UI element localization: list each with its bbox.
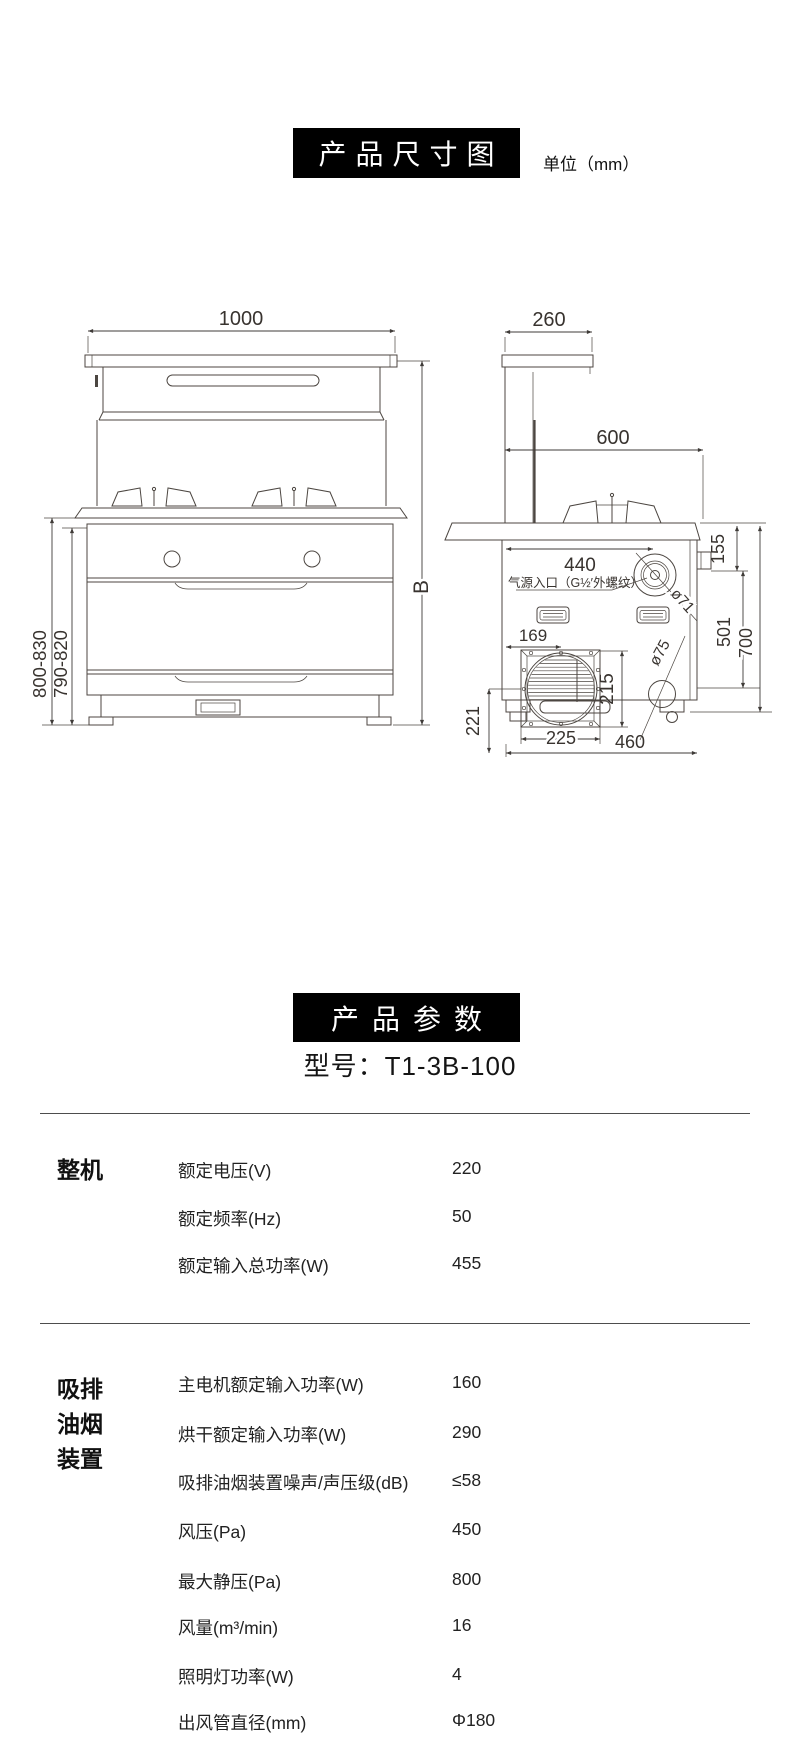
dim-790-820-label: 790-820 xyxy=(50,630,71,698)
spec-row: 照明灯功率(W) 4 xyxy=(0,1664,790,1690)
dim-440: 440 xyxy=(506,549,653,576)
dim-dia75-label: ø75 xyxy=(646,637,674,669)
spec-row: 主电机额定输入功率(W) 160 xyxy=(0,1372,790,1398)
dim-dia71-label: ø71 xyxy=(667,585,698,616)
side-view-drawing: 260 600 xyxy=(445,309,772,757)
product-spec-page: 1000 xyxy=(0,0,790,1737)
section-title-dimensions-label: 产品尺寸图 xyxy=(309,133,503,173)
dim-169-label: 169 xyxy=(519,626,547,645)
spec-row: 最大静压(Pa) 800 xyxy=(0,1569,790,1595)
spec-value: 16 xyxy=(452,1615,471,1636)
dim-155: 155 xyxy=(700,523,766,571)
dimension-drawing: 1000 xyxy=(0,0,790,790)
dim-440-label: 440 xyxy=(564,555,596,576)
spec-value: 50 xyxy=(452,1206,471,1227)
spec-label: 主电机额定输入功率(W) xyxy=(178,1372,364,1397)
spec-row: 烘干额定输入功率(W) 290 xyxy=(0,1422,790,1448)
spec-value: ≤58 xyxy=(452,1470,481,1491)
dim-1000-label: 1000 xyxy=(219,308,264,330)
dim-460-label: 460 xyxy=(615,732,645,752)
spec-row: 风量(m³/min) 16 xyxy=(0,1615,790,1641)
spec-row: 额定电压(V) 220 xyxy=(0,1158,790,1184)
section-title-parameters: 产品参数 xyxy=(293,993,520,1042)
front-view-drawing: 1000 xyxy=(29,308,433,725)
burner-left xyxy=(112,487,196,506)
burner-right xyxy=(252,487,336,506)
dim-215: 215 xyxy=(597,651,628,727)
gas-inlet-label: 气源入口（G½′外螺纹） xyxy=(508,575,643,590)
spec-value: 455 xyxy=(452,1253,481,1274)
spec-label: 额定频率(Hz) xyxy=(178,1206,281,1231)
dim-depth-260: 260 xyxy=(505,309,592,352)
spec-value: 290 xyxy=(452,1422,481,1443)
dim-225: 225 xyxy=(521,727,600,748)
spec-label: 额定输入总功率(W) xyxy=(178,1253,329,1278)
dim-215-label: 215 xyxy=(597,673,618,705)
spec-label: 额定电压(V) xyxy=(178,1158,271,1183)
table-divider-middle xyxy=(40,1323,750,1324)
spec-label: 风量(m³/min) xyxy=(178,1615,278,1640)
dim-B-label: B xyxy=(410,580,433,594)
dim-155-label: 155 xyxy=(708,534,728,564)
dim-700-label: 700 xyxy=(736,628,756,658)
gas-inlet-annotation: 气源入口（G½′外螺纹） xyxy=(508,575,647,590)
spec-value: Φ180 xyxy=(452,1710,495,1731)
spec-label: 照明灯功率(W) xyxy=(178,1664,294,1689)
dim-height-790-820: 790-820 xyxy=(50,528,87,725)
section-title-dimensions: 产品尺寸图 xyxy=(293,128,520,178)
dim-width-1000: 1000 xyxy=(88,308,395,353)
spec-row: 风压(Pa) 450 xyxy=(0,1519,790,1545)
spec-value: 800 xyxy=(452,1569,481,1590)
dim-260-label: 260 xyxy=(532,309,565,331)
model-number: 型号：T1-3B-100 xyxy=(40,1046,780,1083)
unit-label: 单位（mm） xyxy=(543,150,639,175)
table-divider-top xyxy=(40,1113,750,1114)
fan-outlet-box xyxy=(521,650,600,727)
spec-label: 吸排油烟装置噪声/声压级(dB) xyxy=(178,1470,408,1495)
spec-row: 额定频率(Hz) 50 xyxy=(0,1206,790,1232)
spec-label: 最大静压(Pa) xyxy=(178,1569,281,1594)
spec-value: 4 xyxy=(452,1664,462,1685)
spec-value: 450 xyxy=(452,1519,481,1540)
dim-221-label: 221 xyxy=(463,706,483,736)
spec-row: 出风管直径(mm) Φ180 xyxy=(0,1710,790,1736)
hole-dia75: ø75 xyxy=(640,636,685,740)
spec-row: 额定输入总功率(W) 455 xyxy=(0,1253,790,1279)
dim-height-B: B xyxy=(393,361,433,725)
dim-169: 169 xyxy=(506,626,561,647)
dim-501-label: 501 xyxy=(714,617,734,647)
spec-row: 吸排油烟装置噪声/声压级(dB) ≤58 xyxy=(0,1470,790,1496)
spec-label: 出风管直径(mm) xyxy=(178,1710,306,1735)
dim-460: 460 xyxy=(506,732,697,757)
spec-label: 风压(Pa) xyxy=(178,1519,246,1544)
spec-value: 220 xyxy=(452,1158,481,1179)
dim-800-830-label: 800-830 xyxy=(29,630,50,698)
spec-label: 烘干额定输入功率(W) xyxy=(178,1422,346,1447)
spec-value: 160 xyxy=(452,1372,481,1393)
dim-600-label: 600 xyxy=(596,427,629,449)
dim-225-label: 225 xyxy=(546,728,576,748)
section-title-parameters-label: 产品参数 xyxy=(318,998,495,1038)
